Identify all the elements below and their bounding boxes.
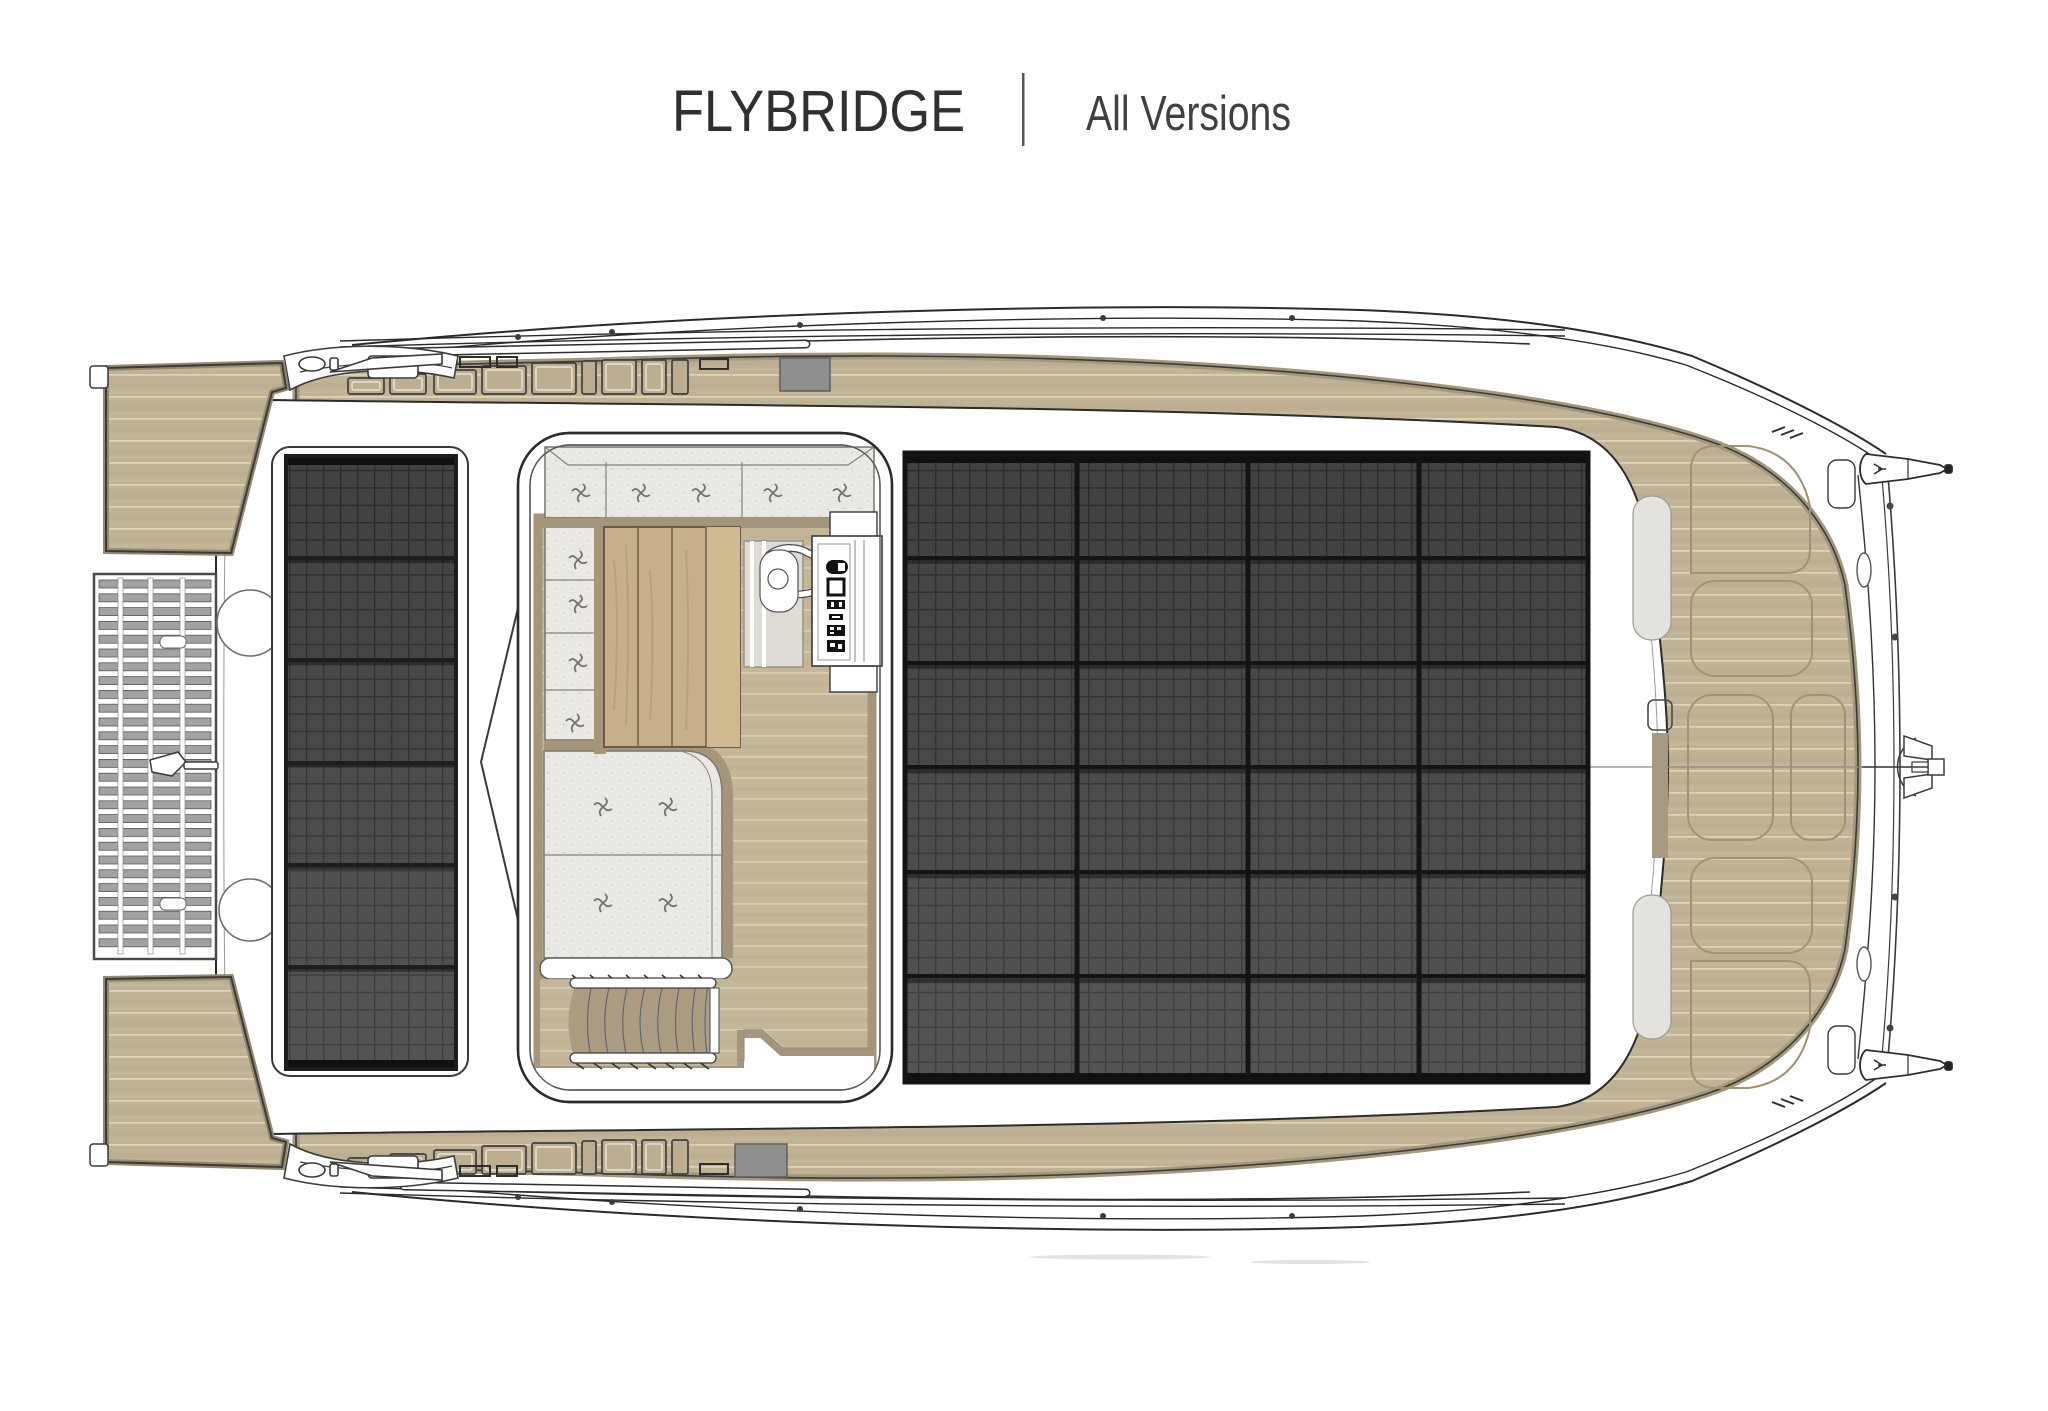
svg-text:FLYBRIDGE: FLYBRIDGE bbox=[672, 79, 965, 144]
svg-text:All Versions: All Versions bbox=[1086, 87, 1291, 141]
